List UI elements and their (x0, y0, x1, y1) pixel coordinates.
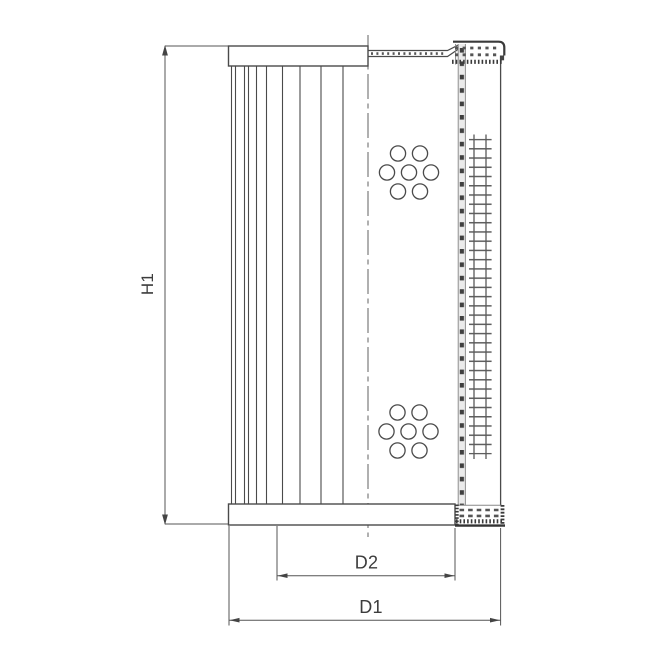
d1-arrow-left (230, 618, 240, 623)
filter-element (229, 35, 506, 537)
support-mesh (469, 135, 492, 460)
bottom-end-cap (229, 504, 456, 525)
perforation-holes-bottom (379, 405, 438, 458)
top-end-cap (229, 46, 369, 66)
h1-dimension: H1 (138, 45, 228, 525)
d1-arrow-right (490, 618, 500, 623)
technical-drawing-canvas: H1 D2 D1 (0, 0, 657, 660)
bottom-rim (455, 505, 505, 527)
d2-dimension: D2 (277, 526, 455, 581)
perforation-holes-top (379, 146, 438, 199)
drawing-page: H1 D2 D1 (0, 0, 657, 660)
h1-arrow-top (162, 45, 168, 56)
d2-arrow-left (278, 573, 288, 578)
h1-arrow-bottom (162, 515, 168, 526)
h1-label: H1 (138, 273, 157, 295)
top-flange (368, 45, 462, 57)
pleated-media (232, 67, 344, 504)
inner-tube (458, 44, 466, 505)
d1-label: D1 (359, 597, 383, 617)
d2-label: D2 (355, 553, 379, 573)
d2-arrow-right (445, 573, 455, 578)
